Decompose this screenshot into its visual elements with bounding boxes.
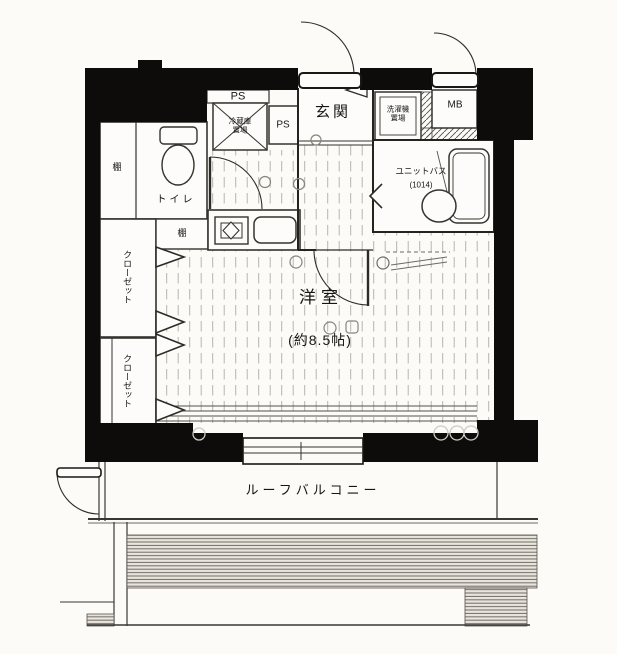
label-shelf-hall: 棚 [177,228,186,238]
label-laundry: 洗濯機 置場 [387,105,410,122]
balcony-access-door [57,468,101,514]
label-laundry-line2: 置場 [387,114,410,123]
label-meter-box: MB [448,99,463,111]
label-unit-bath-size: (1014) [409,180,432,189]
floorplan-image: PS 冷蔵庫 置場 PS 玄関 洗濯機 置場 MB ユニットバス (1014) … [0,0,617,654]
toilet-fixture [160,127,197,185]
label-shelf-toilet: 棚 [112,162,121,172]
sink [254,217,296,243]
label-entrance: 玄関 [315,103,351,120]
label-closet-upper: クローゼット [122,250,132,304]
washbasin [422,190,456,222]
label-ps-top: PS [231,91,246,104]
label-refrigerator-line2: 置場 [229,126,252,135]
balcony-sliding-window [243,438,363,464]
label-room-size: (約8.5帖) [288,332,352,348]
floorplan-drawing [0,0,617,654]
entrance-door [299,22,361,88]
meter-box-door [432,33,478,87]
label-closet-lower: クローゼット [122,354,132,408]
lower-roof [60,522,537,626]
label-unit-bath: ユニットバス [395,167,446,177]
label-ps-side: PS [276,119,289,131]
label-room: 洋室 [299,288,343,308]
label-toilet: トイレ [157,194,196,206]
kitchen-counter [208,210,300,250]
label-roof-balcony: ルーフバルコニー [246,484,381,499]
label-refrigerator: 冷蔵庫 置場 [229,117,252,134]
